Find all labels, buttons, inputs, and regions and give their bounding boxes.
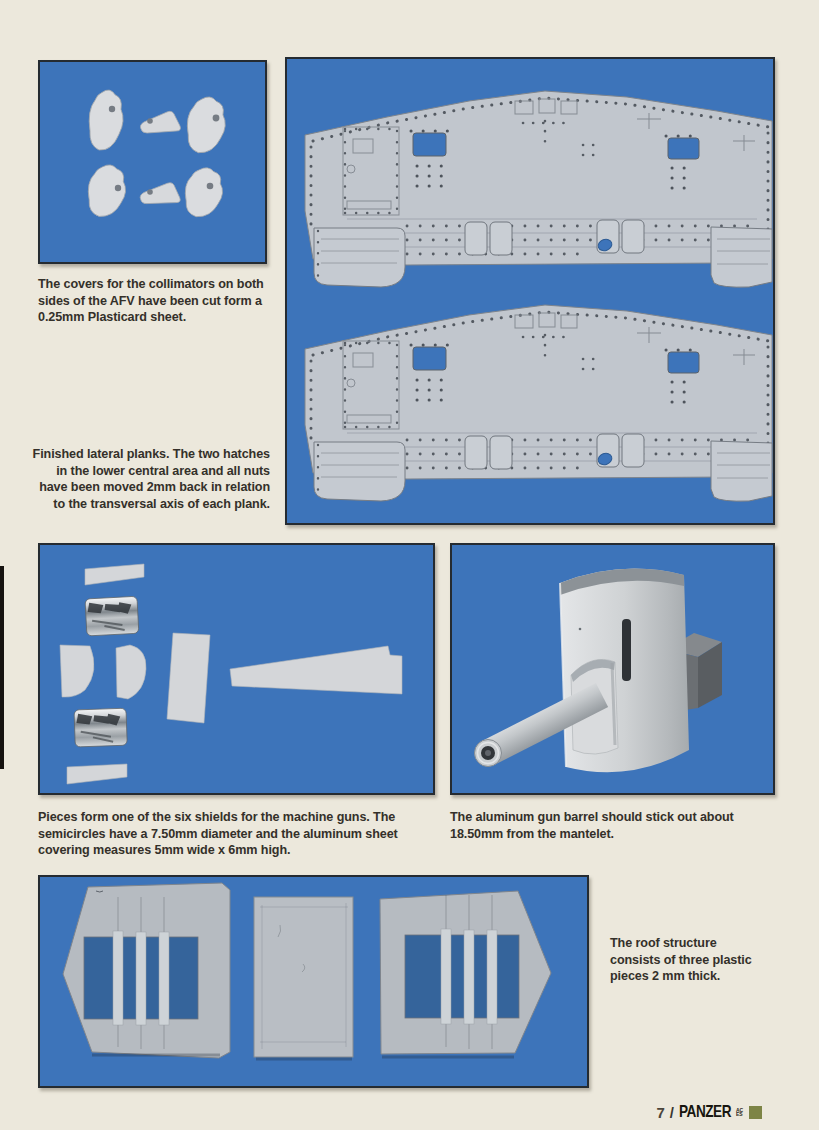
gun-mantelet-graphic <box>452 545 773 793</box>
footer-separator: / <box>670 1104 674 1121</box>
photo-shield-pieces <box>38 543 435 795</box>
caption-lateral-planks: Finished lateral planks. The two hatches… <box>30 446 270 512</box>
shield-pieces-graphic <box>40 545 433 793</box>
photo-roof-pieces <box>38 875 589 1088</box>
magazine-logo-suffix: ACES <box>736 1108 744 1116</box>
caption-shield-pieces: Pieces form one of the six shields for t… <box>38 809 452 859</box>
magazine-logo: PANZER <box>679 1102 731 1122</box>
lateral-planks-graphic <box>287 59 773 523</box>
photo-lateral-planks <box>285 57 775 525</box>
photo-gun-mantelet <box>450 543 775 795</box>
caption-roof: The roof structure consists of three pla… <box>610 935 770 985</box>
collimator-covers-graphic <box>40 62 265 262</box>
photo-collimator-covers <box>38 60 267 264</box>
page-edge-tab <box>0 566 4 769</box>
caption-gun-barrel: The aluminum gun barrel should stick out… <box>450 809 782 842</box>
page-footer: 7 / PANZER ACES <box>0 1102 762 1122</box>
caption-collimators: The covers for the collimators on both s… <box>38 276 288 326</box>
magazine-page: The covers for the collimators on both s… <box>0 0 819 1130</box>
page-number: 7 <box>656 1104 664 1121</box>
roof-pieces-graphic <box>40 877 587 1086</box>
magazine-accent-square-icon <box>749 1106 762 1119</box>
